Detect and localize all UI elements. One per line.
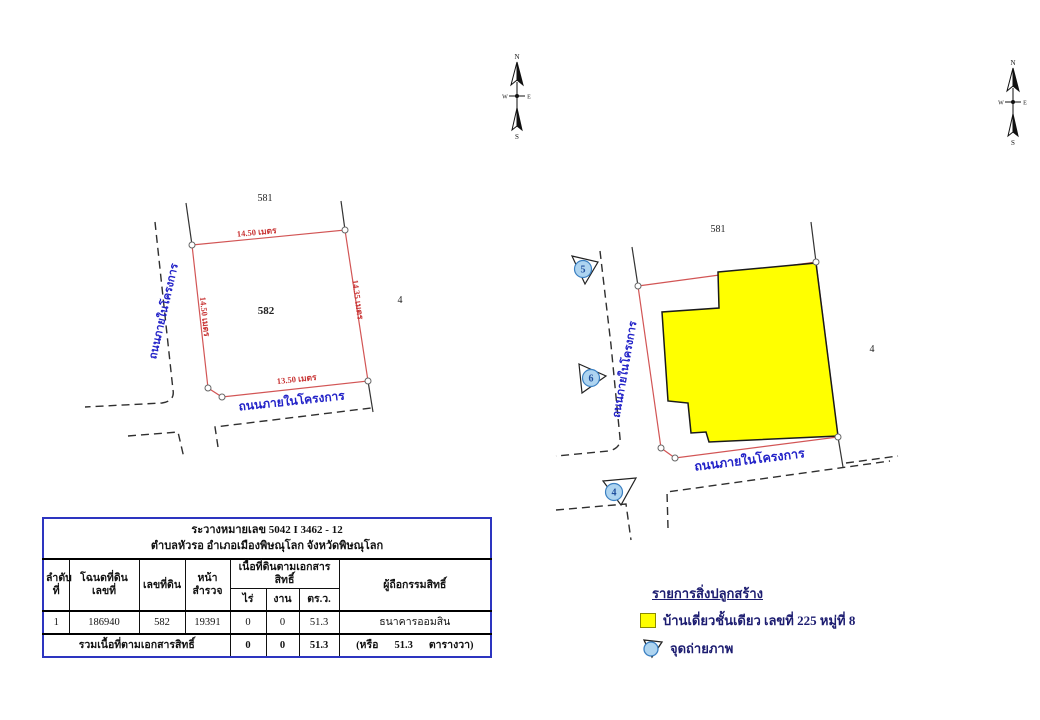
boundary-node — [219, 394, 225, 400]
road-name-left: ถนนภายในโครงการ — [145, 262, 181, 360]
compass-s-label: S — [515, 133, 519, 141]
compass-head-left — [511, 62, 517, 85]
total-note: (หรือ51.3ตารางวา) — [339, 634, 491, 657]
photo-point-marker-4: 4 — [603, 478, 636, 505]
col-header-owner: ผู้ถือกรรมสิทธิ์ — [339, 559, 491, 611]
cell-owner: ธนาคารออมสิน — [339, 611, 491, 634]
col-header-rai: ไร่ — [230, 589, 266, 612]
sheet-number-title: ระวางหมายเลข 5042 I 3462 - 12 — [46, 523, 488, 539]
photo-point-marker-6: 6 — [579, 364, 606, 393]
photo-point-number: 4 — [612, 488, 617, 499]
total-label: รวมเนื้อที่ตามเอกสารสิทธิ์ — [43, 634, 230, 657]
cell-rai: 0 — [230, 611, 266, 634]
col-header-no: ลำดับ ที่ — [43, 559, 69, 611]
land-rights-table-container: ระวางหมายเลข 5042 I 3462 - 12 ตำบลหัวรอ … — [42, 517, 492, 658]
location-title: ตำบลหัวรอ อำเภอเมืองพิษณุโลก จังหวัดพิษณ… — [46, 539, 488, 555]
boundary-node — [672, 455, 678, 461]
col-header-ngan: งาน — [266, 589, 299, 612]
table-title: ระวางหมายเลข 5042 I 3462 - 12 ตำบลหัวรอ … — [43, 518, 491, 559]
road-edge-dashed — [846, 456, 898, 463]
survey-line — [186, 203, 192, 245]
legend-item-building: บ้านเดี่ยวชั้นเดียว เลขที่ 225 หมู่ที่ 8 — [640, 610, 855, 631]
parcel-diagram-plain: 14.50 เมตร 14.35 เมตร 13.50 เมตร 14.50 เ… — [85, 193, 403, 458]
photo-point-marker-5: 5 — [572, 256, 598, 284]
cell-sqwah: 51.3 — [299, 611, 339, 634]
adjacent-parcel-east-label: 4 — [870, 344, 875, 355]
compass-n-label: N — [1010, 59, 1015, 67]
road-edge-dashed — [128, 432, 184, 458]
compass-n-label: N — [514, 53, 519, 61]
cell-no: 1 — [43, 611, 69, 634]
cell-survey-page: 19391 — [185, 611, 230, 634]
legend-heading: รายการสิ่งปลูกสร้าง — [652, 583, 855, 604]
survey-line — [632, 247, 638, 286]
compass-e-label: E — [527, 95, 531, 101]
compass-w-label: W — [502, 95, 508, 101]
total-sqwah: 51.3 — [299, 634, 339, 657]
boundary-node — [813, 259, 819, 265]
parcel-diagram-building: 581 4 ถนนภายในโครงการ ถนนภายในโครงการ 5 … — [556, 222, 898, 540]
col-header-parcel: เลขที่ดิน — [139, 559, 185, 611]
compass-e-label: E — [1023, 101, 1027, 107]
col-header-area-group: เนื้อที่ดินตามเอกสารสิทธิ์ — [230, 559, 339, 589]
cell-ngan: 0 — [266, 611, 299, 634]
survey-line — [368, 381, 373, 412]
land-rights-table: ระวางหมายเลข 5042 I 3462 - 12 ตำบลหัวรอ … — [42, 517, 492, 658]
dimension-right-label: 14.35 เมตร — [350, 279, 366, 320]
cell-deed-number: 186940 — [69, 611, 139, 634]
boundary-node — [342, 227, 348, 233]
survey-line — [838, 437, 843, 467]
photo-point-number: 5 — [581, 265, 586, 276]
col-header-deed: โฉนดที่ดิน เลขที่ — [69, 559, 139, 611]
adjacent-parcel-east-label: 4 — [398, 295, 403, 306]
compass-tail-right — [1013, 114, 1018, 136]
boundary-node — [365, 378, 371, 384]
table-total-row: รวมเนื้อที่ตามเอกสารสิทธิ์ 0 0 51.3 (หรื… — [43, 634, 491, 657]
legend-photo-label: จุดถ่ายภาพ — [670, 638, 733, 659]
road-edge-dashed — [556, 251, 620, 456]
photo-point-icon — [640, 637, 664, 659]
compass-tail-left — [1008, 114, 1013, 136]
legend-building-label: บ้านเดี่ยวชั้นเดียว เลขที่ 225 หมู่ที่ 8 — [663, 610, 855, 631]
table-row: 1 186940 582 19391 0 0 51.3 ธนาคารออมสิน — [43, 611, 491, 634]
compass-s-label: S — [1011, 139, 1015, 147]
photo-point-number: 6 — [589, 374, 594, 385]
compass-center — [515, 94, 519, 98]
north-arrow-right: N S W E — [998, 59, 1027, 147]
adjacent-parcel-north-label: 581 — [258, 193, 273, 204]
compass-center — [1011, 100, 1015, 104]
boundary-node — [635, 283, 641, 289]
survey-line — [341, 201, 345, 230]
road-edge-dashed — [215, 408, 371, 447]
compass-w-label: W — [998, 101, 1004, 107]
compass-tail-left — [512, 108, 517, 130]
col-header-survey: หน้าสำรวจ — [185, 559, 230, 611]
compass-head-right — [1013, 68, 1019, 91]
parcel-boundary — [192, 230, 368, 397]
road-name-bottom: ถนนภายในโครงการ — [693, 445, 805, 473]
parcel-number-label: 582 — [258, 305, 275, 317]
compass-head-left — [1007, 68, 1013, 91]
col-header-sqwah: ตร.ว. — [299, 589, 339, 612]
boundary-node — [658, 445, 664, 451]
adjacent-parcel-north-label: 581 — [711, 224, 726, 235]
total-ngan: 0 — [266, 634, 299, 657]
compass-head-right — [517, 62, 523, 85]
boundary-node — [205, 385, 211, 391]
building-color-swatch — [640, 613, 656, 628]
boundary-node — [189, 242, 195, 248]
north-arrow-left: N S W E — [502, 53, 531, 141]
compass-tail-right — [517, 108, 522, 130]
survey-line — [811, 222, 816, 262]
road-edge-dashed — [556, 504, 631, 540]
legend-item-photo: จุดถ่ายภาพ — [640, 637, 855, 659]
survey-document-page: { "compass": { "n": "N", "s": "S", "w": … — [0, 0, 1040, 720]
dimension-bottom-label: 13.50 เมตร — [276, 372, 317, 386]
dimension-left-label: 14.50 เมตร — [198, 296, 212, 337]
road-name-bottom: ถนนภายในโครงการ — [238, 387, 346, 413]
boundary-node — [835, 434, 841, 440]
legend: รายการสิ่งปลูกสร้าง บ้านเดี่ยวชั้นเดียว … — [640, 583, 855, 665]
total-rai: 0 — [230, 634, 266, 657]
cell-parcel-number: 582 — [139, 611, 185, 634]
building-footprint — [662, 263, 838, 442]
